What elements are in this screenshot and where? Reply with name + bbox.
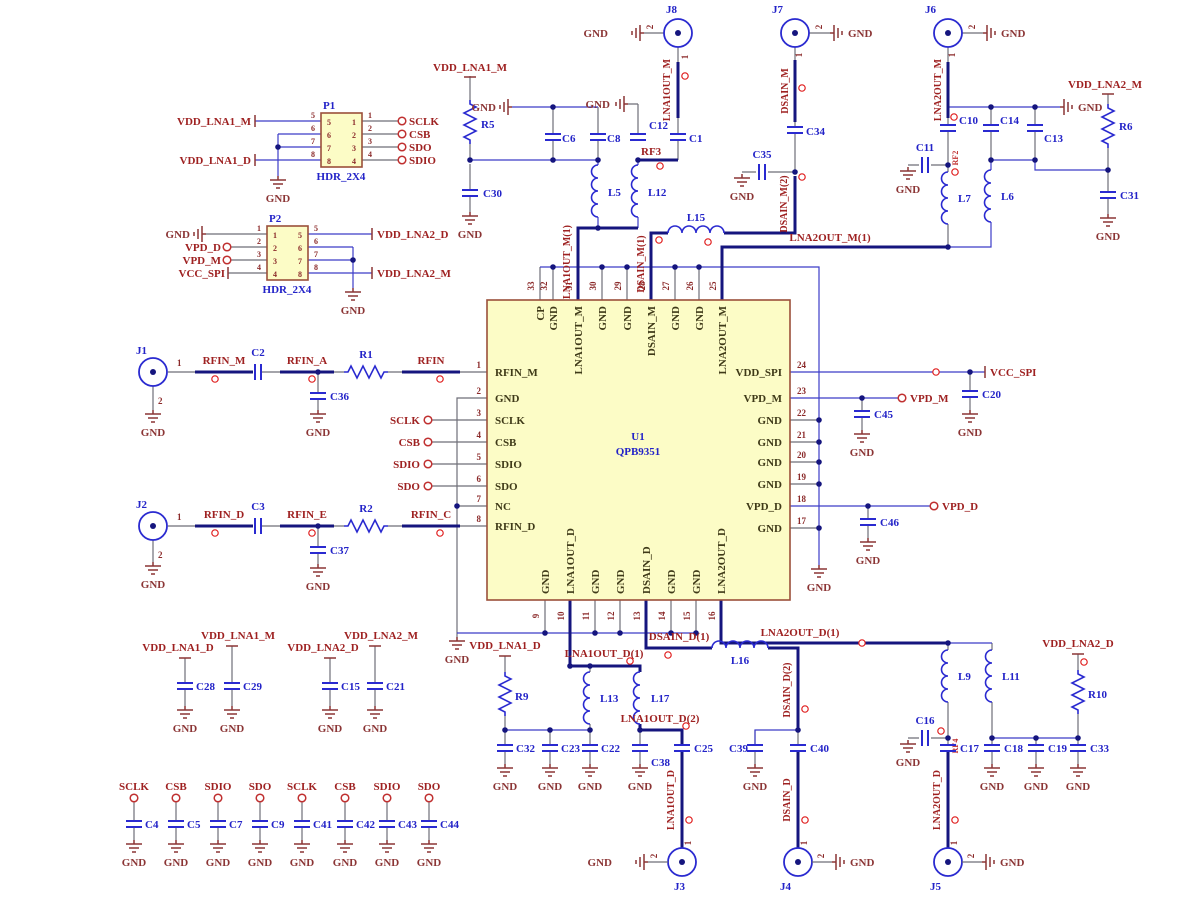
net-label-lna2out-d: LNA2OUT_D (932, 770, 943, 830)
port-label-sdio: SDIO (205, 781, 232, 793)
ic-pin-number: 30 (588, 281, 598, 291)
header-refdes: P2 (269, 213, 282, 225)
gnd-label: GND (1024, 781, 1049, 793)
ic-pin-number: 25 (708, 281, 718, 291)
ic-pin-number: 14 (657, 611, 667, 621)
ind-refdes: L17 (651, 693, 670, 705)
cap-refdes: C31 (1120, 190, 1139, 202)
cap-refdes: C39 (729, 743, 748, 755)
res-refdes: R2 (359, 503, 373, 515)
header-part: HDR_2X4 (317, 171, 366, 183)
ic-pin-name: DSAIN_D (641, 546, 653, 594)
ic-pin-number: 11 (581, 611, 591, 620)
ic-pin-number: 21 (797, 430, 807, 440)
net-label-rfin: RFIN (418, 355, 445, 367)
gnd-label: GND (896, 757, 921, 769)
ic-pin-name: GND (694, 306, 706, 331)
cap-refdes: C38 (651, 757, 670, 769)
ic-pin-number: 27 (661, 281, 671, 291)
pin-number: 2 (967, 24, 977, 29)
gnd-label: GND (493, 781, 518, 793)
ic-pin-name: CP (535, 306, 547, 321)
cap-refdes: C11 (916, 142, 934, 154)
port-label-csb: CSB (409, 129, 431, 141)
ic-pin-name: LNA1OUT_D (565, 528, 577, 594)
pin-number: 1 (177, 512, 182, 522)
net-label-dsain-m1: DSAIN_M(1) (636, 235, 647, 292)
schematic-page: U1 QPB9351 RFIN_M GND SCLK CSB SDIO SDO … (0, 0, 1200, 900)
ic-pin-name: GND (495, 393, 520, 405)
cap-refdes: C18 (1004, 743, 1023, 755)
ic-pin-number: 6 (477, 474, 482, 484)
port-label-vpd-m: VPD_M (183, 255, 222, 267)
ic-pin-number: 33 (526, 281, 536, 291)
header-pin: 2 (273, 244, 277, 253)
stub-pin: 3 (257, 250, 261, 259)
pin-number: 1 (683, 840, 693, 845)
port-label-sdio: SDIO (409, 155, 436, 167)
ic-pin-name: VDD_SPI (736, 367, 782, 379)
ic-pin-name: DSAIN_M (646, 305, 658, 356)
gnd-label: GND (1001, 28, 1026, 40)
ic-pin-number: 16 (707, 611, 717, 621)
gnd-label: GND (538, 781, 563, 793)
port-label-sdo: SDO (409, 142, 432, 154)
gnd-label: GND (588, 857, 613, 869)
stub-pin: 2 (368, 124, 372, 133)
net-label-vdd-lna2-d: VDD_LNA2_D (287, 642, 359, 654)
connector-label: J5 (930, 881, 942, 893)
pin-number: 1 (177, 358, 182, 368)
net-label-rfin-e: RFIN_E (287, 509, 327, 521)
net-label-vdd-lna2-m: VDD_LNA2_M (344, 630, 419, 642)
ic-pin-number: 5 (477, 452, 482, 462)
header-pin: 7 (298, 257, 302, 266)
gnd-label: GND (173, 723, 198, 735)
gnd-label: GND (586, 99, 611, 111)
ic-pin-name: GND (615, 570, 627, 595)
ic-pin-name: SCLK (495, 415, 525, 427)
gnd-label: GND (141, 579, 166, 591)
cap-refdes: C8 (607, 133, 621, 145)
net-label-lna1out-m1: LNA1OUT_M(1) (562, 225, 573, 299)
ind-refdes: L12 (648, 187, 667, 199)
net-label-dsain-d: DSAIN_D (782, 778, 793, 821)
net-label-vdd-lna1-d: VDD_LNA1_D (469, 640, 541, 652)
gnd-label: GND (807, 582, 832, 594)
header-pin: 2 (352, 131, 356, 140)
ic-part-number: QPB9351 (616, 446, 661, 458)
cap-refdes: C9 (271, 819, 285, 831)
net-label-lna1out-m: LNA1OUT_M (662, 58, 673, 121)
lna2out-m-network: J6 2 GND 1 LNA2OUT_M C10 RF2 C11 GND L7 … (705, 4, 1143, 250)
gnd-label: GND (266, 193, 291, 205)
header-pin: 5 (298, 231, 302, 240)
stub-pin: 4 (368, 150, 372, 159)
cap-refdes: C4 (145, 819, 159, 831)
net-label-rf3: RF3 (641, 146, 662, 158)
gnd-label: GND (958, 427, 983, 439)
pin-number: 2 (158, 396, 163, 406)
lna1out-d-network: LNA1OUT_D(1) L13 L17 VDD_LNA1_D R9 C32 C… (469, 640, 713, 893)
port-label-sdo: SDO (418, 781, 441, 793)
res-refdes: R10 (1088, 689, 1107, 701)
header-pin: 7 (327, 144, 331, 153)
cap-refdes: C45 (874, 409, 893, 421)
dsain-m-network: DSAIN_M(1) L15 DSAIN_M(2) C35 GND C34 DS… (636, 4, 873, 293)
ic-pin-number: 10 (556, 611, 566, 621)
ic-pin-number: 18 (797, 494, 807, 504)
net-label-vdd-lna2-d: VDD_LNA2_D (1042, 638, 1114, 650)
cap-refdes: C1 (689, 133, 702, 145)
pin-number: 1 (794, 52, 804, 57)
ic-pin-name: GND (622, 306, 634, 331)
header-pin: 1 (273, 231, 277, 240)
gnd-label: GND (306, 427, 331, 439)
gnd-label: GND (206, 857, 231, 869)
cap-refdes: C5 (187, 819, 201, 831)
gnd-label: GND (1066, 781, 1091, 793)
header-part: HDR_2X4 (263, 284, 312, 296)
cap-refdes: C32 (516, 743, 535, 755)
res-refdes: R1 (359, 349, 372, 361)
gnd-label: GND (1096, 231, 1121, 243)
res-refdes: R6 (1119, 121, 1133, 133)
header-pin: 3 (273, 257, 277, 266)
ic-pin-number: 2 (477, 386, 482, 396)
cap-refdes: C34 (806, 126, 825, 138)
cap-refdes: C17 (960, 743, 979, 755)
ic-pin-name: SDIO (495, 459, 522, 471)
gnd-label: GND (318, 723, 343, 735)
gnd-label: GND (141, 427, 166, 439)
pin-number: 2 (158, 550, 163, 560)
port-label-vpd-d: VPD_D (185, 242, 221, 254)
gnd-label: GND (166, 229, 191, 241)
cap-refdes: C3 (251, 501, 265, 513)
ic-pin-number: 26 (685, 281, 695, 291)
header-pin: 4 (352, 157, 356, 166)
gnd-label: GND (375, 857, 400, 869)
pin-number: 1 (949, 840, 959, 845)
res-refdes: R9 (515, 691, 529, 703)
port-label-csb: CSB (399, 437, 421, 449)
stub-pin: 2 (257, 237, 261, 246)
header-pin: 8 (298, 270, 302, 279)
port-label-vpd-d: VPD_D (942, 501, 978, 513)
ic-pin-name: GND (758, 523, 783, 535)
port-label-sclk: SCLK (287, 781, 317, 793)
schematic-canvas: U1 QPB9351 RFIN_M GND SCLK CSB SDIO SDO … (0, 0, 1200, 900)
stub-pin: 8 (314, 263, 318, 272)
net-label-rfin-m: RFIN_M (203, 355, 246, 367)
pin-number: 2 (649, 853, 659, 858)
ic-pin-name: GND (540, 570, 552, 595)
connector-J7 (781, 19, 809, 47)
ind-refdes: L11 (1002, 671, 1020, 683)
ic-pin-number: 7 (477, 494, 482, 504)
net-label-rf2: RF2 (951, 151, 960, 166)
cap-refdes: C21 (386, 681, 405, 693)
net-label-vdd-lna1-m: VDD_LNA1_M (201, 630, 276, 642)
stub-pin: 5 (311, 111, 315, 120)
ind-refdes: L15 (687, 212, 706, 224)
gnd-label: GND (743, 781, 768, 793)
ind-refdes: L13 (600, 693, 619, 705)
gnd-label: GND (122, 857, 147, 869)
connector-label: J6 (925, 4, 937, 16)
net-label-vdd-lna1-m: VDD_LNA1_M (433, 62, 508, 74)
gnd-label: GND (730, 191, 755, 203)
ic-pin-name: GND (758, 479, 783, 491)
ic-pin-name: VPD_M (744, 393, 783, 405)
ic-pin-number: 3 (477, 408, 482, 418)
net-label-vdd-lna2-d: VDD_LNA2_D (377, 229, 449, 241)
ic-pin-number: 22 (797, 408, 807, 418)
ic-pin-number: 8 (477, 514, 482, 524)
lna2out-d-network: LNA2OUT_D(1) L9 L11 RF4 C16 GND C17 LNA2… (761, 627, 1114, 893)
gnd-label: GND (248, 857, 273, 869)
header-pin: 1 (352, 118, 356, 127)
ic-pin-name: RFIN_M (495, 367, 538, 379)
net-label-rfin-d: RFIN_D (204, 509, 244, 521)
gnd-label: GND (848, 28, 873, 40)
ic-pin-number: 29 (613, 281, 623, 291)
ic-pin-number: 1 (477, 360, 482, 370)
header-pin: 6 (327, 131, 331, 140)
ind-refdes: L9 (958, 671, 971, 683)
connector-label: J3 (674, 881, 686, 893)
gnd-label: GND (1000, 857, 1025, 869)
port-label-sclk: SCLK (390, 415, 420, 427)
ic-refdes: U1 (631, 431, 644, 443)
cap-refdes: C16 (916, 715, 935, 727)
gnd-label: GND (1078, 102, 1103, 114)
ic-pin-name: GND (758, 437, 783, 449)
connector-J1 (139, 358, 167, 386)
gnd-label: GND (333, 857, 358, 869)
header-P2: P2 HDR_2X4 1 2 3 4 5 6 7 8 1 2 3 4 5 6 7… (166, 213, 452, 317)
net-label-lna2out-d1: LNA2OUT_D(1) (761, 627, 840, 639)
ic-pin-number: 4 (477, 430, 482, 440)
ic-pin-name: GND (670, 306, 682, 331)
pin-number: 1 (947, 52, 957, 57)
connector-J6 (934, 19, 962, 47)
stub-pin: 6 (314, 237, 318, 246)
net-label-lna2out-m1: LNA2OUT_M(1) (789, 232, 871, 244)
header-P1: P1 HDR_2X4 5 6 7 8 1 2 3 4 5 6 7 8 1 2 3… (177, 100, 439, 205)
connector-label: J4 (780, 881, 792, 893)
header-pin: 6 (298, 244, 302, 253)
ic-pin-name: GND (548, 306, 560, 331)
connector-label: J8 (666, 4, 678, 16)
connector-J2 (139, 512, 167, 540)
ic-pin-number: 32 (539, 281, 549, 291)
net-label-rfin-a: RFIN_A (287, 355, 327, 367)
connector-J8 (664, 19, 692, 47)
gnd-label: GND (856, 555, 881, 567)
net-label-rfin-c: RFIN_C (411, 509, 451, 521)
net-label-lna2out-m: LNA2OUT_M (933, 58, 944, 121)
ic-pin-name: GND (758, 415, 783, 427)
ic-pin-name: LNA1OUT_M (573, 305, 585, 374)
gnd-label: GND (578, 781, 603, 793)
pin-number: 2 (816, 853, 826, 858)
cap-refdes: C14 (1000, 115, 1019, 127)
port-label-sdo: SDO (249, 781, 272, 793)
cap-refdes: C33 (1090, 743, 1109, 755)
pin-number: 2 (645, 24, 655, 29)
net-label-dsain-m2: DSAIN_M(2) (779, 175, 790, 232)
connector-J4 (784, 848, 812, 876)
cap-refdes: C22 (601, 743, 620, 755)
cap-refdes: C35 (753, 149, 772, 161)
ic-pin-number: 17 (797, 516, 807, 526)
gnd-label: GND (290, 857, 315, 869)
cap-refdes: C13 (1044, 133, 1063, 145)
ic-pin-name: GND (758, 457, 783, 469)
cap-refdes: C37 (330, 545, 349, 557)
ic-pin-name: LNA2OUT_D (716, 528, 728, 594)
gnd-label: GND (458, 229, 483, 241)
cap-refdes: C46 (880, 517, 899, 529)
ic-pin-name: VPD_D (746, 501, 782, 513)
stub-pin: 1 (368, 111, 372, 120)
cap-refdes: C7 (229, 819, 243, 831)
ic-pin-name: CSB (495, 437, 517, 449)
ic-pin-name: NC (495, 501, 511, 513)
gnd-label: GND (306, 581, 331, 593)
pin-number: 2 (966, 853, 976, 858)
gnd-label: GND (980, 781, 1005, 793)
gnd-label: GND (850, 447, 875, 459)
ic-pin-number: 12 (606, 611, 616, 621)
ind-refdes: L16 (731, 655, 750, 667)
gnd-label: GND (850, 857, 875, 869)
gnd-label: GND (363, 723, 388, 735)
cap-refdes: C36 (330, 391, 349, 403)
header-pin: 8 (327, 157, 331, 166)
stub-pin: 1 (257, 224, 261, 233)
cap-refdes: C2 (251, 347, 265, 359)
header-pin: 4 (273, 270, 277, 279)
spi-line-caps: SCLK CSB SDIO SDO SCLK CSB SDIO SDO C4 C… (119, 781, 459, 869)
gnd-label: GND (445, 654, 470, 666)
header-pin: 3 (352, 144, 356, 153)
ind-refdes: L7 (958, 193, 971, 205)
net-label-dsain-m: DSAIN_M (780, 68, 791, 114)
ic-pin-number: 24 (797, 360, 807, 370)
lna1out-m-network: VDD_LNA1_M R5 C30 GND GND C6 C8 L5 L12 G… (433, 4, 702, 299)
cap-refdes: C23 (561, 743, 580, 755)
gnd-label: GND (628, 781, 653, 793)
vdd-decoupling-caps: VDD_LNA1_D VDD_LNA1_M VDD_LNA2_D VDD_LNA… (142, 630, 418, 735)
port-label-csb: CSB (334, 781, 356, 793)
ic-pin-name: RFIN_D (495, 521, 535, 533)
stub-pin: 8 (311, 150, 315, 159)
cap-refdes: C40 (810, 743, 829, 755)
connector-label: J1 (136, 345, 147, 357)
net-label-vcc-spi: VCC_SPI (179, 268, 225, 280)
net-label-vdd-lna1-d: VDD_LNA1_D (180, 155, 252, 167)
gnd-label: GND (472, 102, 497, 114)
cap-refdes: C28 (196, 681, 215, 693)
connector-J3 (668, 848, 696, 876)
ic-pin-number: 13 (632, 611, 642, 621)
ind-refdes: L5 (608, 187, 621, 199)
ind-refdes: L6 (1001, 191, 1014, 203)
ic-pin-number: 23 (797, 386, 807, 396)
port-label-sclk: SCLK (119, 781, 149, 793)
pin-number: 2 (814, 24, 824, 29)
port-label-sdio: SDIO (393, 459, 420, 471)
pin-number: 1 (799, 840, 809, 845)
cap-refdes: C19 (1048, 743, 1067, 755)
cap-refdes: C44 (440, 819, 459, 831)
net-label-dsain-d1: DSAIN_D(1) (649, 631, 710, 643)
connector-label: J2 (136, 499, 148, 511)
stub-pin: 6 (311, 124, 315, 133)
ic-pin-name: SDO (495, 481, 518, 493)
port-label-vpd-m: VPD_M (910, 393, 949, 405)
cap-refdes: C42 (356, 819, 375, 831)
net-label-vdd-lna1-m: VDD_LNA1_M (177, 116, 252, 128)
net-label-vdd-lna1-d: VDD_LNA1_D (142, 642, 214, 654)
stub-pin: 7 (311, 137, 315, 146)
port-label-sdio: SDIO (374, 781, 401, 793)
cap-refdes: C43 (398, 819, 417, 831)
gnd-label: GND (164, 857, 189, 869)
header-refdes: P1 (323, 100, 335, 112)
gnd-label: GND (417, 857, 442, 869)
stub-pin: 5 (314, 224, 318, 233)
stub-pin: 3 (368, 137, 372, 146)
cap-refdes: C25 (694, 743, 713, 755)
gnd-label: GND (584, 28, 609, 40)
cap-refdes: C15 (341, 681, 360, 693)
net-label-vdd-lna2-m: VDD_LNA2_M (377, 268, 452, 280)
net-label-vcc-spi: VCC_SPI (990, 367, 1036, 379)
net-label-lna1out-d: LNA1OUT_D (666, 770, 677, 830)
stub-pin: 7 (314, 250, 318, 259)
res-refdes: R5 (481, 119, 495, 131)
gnd-label: GND (341, 305, 366, 317)
cap-refdes: C41 (313, 819, 332, 831)
ic-pin-number: 15 (682, 611, 692, 621)
net-label-dsain-d2: DSAIN_D(2) (782, 663, 793, 718)
ic-pin-name: GND (590, 570, 602, 595)
ic-U1: U1 QPB9351 RFIN_M GND SCLK CSB SDIO SDO … (477, 281, 807, 621)
gnd-label: GND (220, 723, 245, 735)
rf-input-chains: J1 1 RFIN_M C2 RFIN_A C36 GND R1 RFIN 2 … (136, 345, 460, 593)
port-label-csb: CSB (165, 781, 187, 793)
port-label-sdo: SDO (397, 481, 420, 493)
ic-pin-name: GND (691, 570, 703, 595)
port-label-sclk: SCLK (409, 116, 439, 128)
stub-pin: 4 (257, 263, 261, 272)
pin-number: 1 (680, 54, 690, 59)
ic-pin-number: 19 (797, 472, 807, 482)
cap-refdes: C6 (562, 133, 576, 145)
ic-pin-number: 20 (797, 450, 807, 460)
cap-refdes: C20 (982, 389, 1001, 401)
ic-pin-number: 9 (531, 613, 541, 618)
connector-J5 (934, 848, 962, 876)
connector-label: J7 (772, 4, 784, 16)
net-label-vdd-lna2-m: VDD_LNA2_M (1068, 79, 1143, 91)
ic-pin-name: LNA2OUT_M (717, 305, 729, 374)
cap-refdes: C29 (243, 681, 262, 693)
